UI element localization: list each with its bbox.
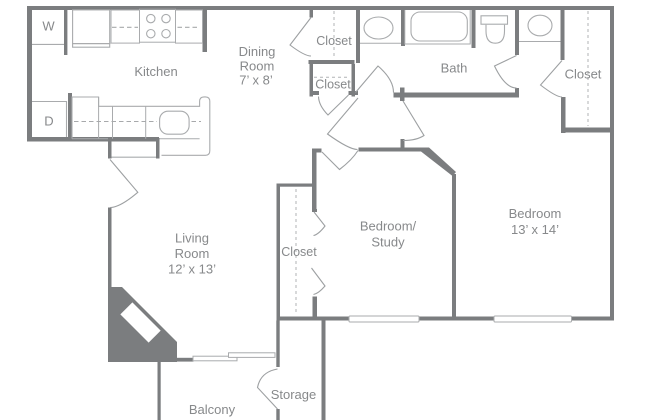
svg-text:Closet: Closet [281,245,317,259]
svg-text:Bath: Bath [441,61,468,76]
svg-text:Dining: Dining [239,44,276,59]
svg-text:W: W [42,19,55,34]
svg-text:Storage: Storage [271,387,317,402]
svg-text:Room: Room [240,59,275,74]
svg-text:D: D [44,114,53,129]
svg-text:Kitchen: Kitchen [134,64,177,79]
svg-text:Study: Study [371,235,405,250]
svg-text:13’ x 14’: 13’ x 14’ [511,222,559,237]
svg-text:12’ x 13’: 12’ x 13’ [168,262,216,277]
svg-text:Closet: Closet [316,34,352,48]
svg-text:Balcony: Balcony [189,402,236,417]
svg-text:Closet: Closet [565,67,602,82]
svg-text:Room: Room [175,246,210,261]
svg-text:Closet: Closet [315,78,351,92]
svg-text:7’ x 8’: 7’ x 8’ [239,73,273,88]
svg-text:Bedroom: Bedroom [509,206,562,221]
svg-text:Bedroom/: Bedroom/ [360,219,417,234]
svg-text:Living: Living [175,231,209,246]
